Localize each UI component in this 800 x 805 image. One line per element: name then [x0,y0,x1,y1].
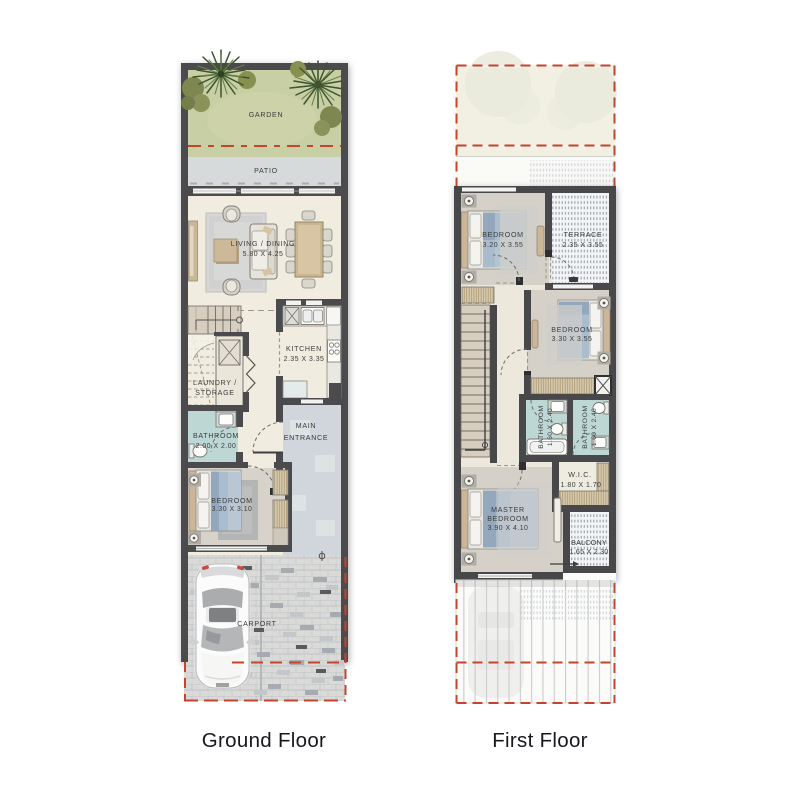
svg-text:STORAGE: STORAGE [195,389,234,397]
svg-text:GARDEN: GARDEN [249,111,284,119]
svg-text:BEDROOM: BEDROOM [482,231,524,239]
svg-text:2.35 X 3.35: 2.35 X 3.35 [284,356,325,363]
svg-text:BALCONY: BALCONY [571,538,607,547]
svg-text:First Floor: First Floor [492,729,588,752]
svg-text:PATIO: PATIO [254,167,278,175]
svg-text:2.35 X 3.55: 2.35 X 3.55 [563,242,604,249]
svg-text:Ground Floor: Ground Floor [202,729,326,752]
svg-text:1.80 X 1.70: 1.80 X 1.70 [561,482,602,489]
svg-text:BEDROOM: BEDROOM [551,326,593,334]
svg-text:KITCHEN: KITCHEN [286,345,322,353]
svg-text:BATHROOM: BATHROOM [582,405,589,449]
svg-text:LIVING / DINING: LIVING / DINING [231,240,296,248]
svg-text:3.20 X 3.55: 3.20 X 3.55 [483,242,524,249]
svg-text:3.90 X 4.10: 3.90 X 4.10 [488,525,529,532]
svg-text:3.30 X 3.10: 3.30 X 3.10 [212,506,253,513]
svg-text:BEDROOM: BEDROOM [211,497,253,505]
svg-text:TERRACE: TERRACE [564,231,603,239]
svg-text:3.30 X 3.55: 3.30 X 3.55 [552,336,593,343]
svg-text:MASTER: MASTER [491,506,525,514]
svg-text:1.65 X 2.30: 1.65 X 2.30 [570,547,609,556]
svg-text:BEDROOM: BEDROOM [487,515,529,523]
svg-text:MAIN: MAIN [296,422,317,430]
svg-text:2.00 X 2.00: 2.00 X 2.00 [196,443,237,450]
svg-text:1.60 X 2.40: 1.60 X 2.40 [591,408,598,446]
svg-text:ENTRANCE: ENTRANCE [284,434,329,442]
svg-text:BATHROOM: BATHROOM [538,405,545,449]
svg-text:5.80 X 4.25: 5.80 X 4.25 [243,251,284,258]
svg-text:W.I.C.: W.I.C. [568,471,592,479]
svg-text:BATHROOM: BATHROOM [193,432,239,440]
svg-text:LAUNDRY /: LAUNDRY / [193,379,237,387]
svg-text:CARPORT: CARPORT [237,620,276,628]
svg-text:1.60 X 2.40: 1.60 X 2.40 [547,408,554,446]
